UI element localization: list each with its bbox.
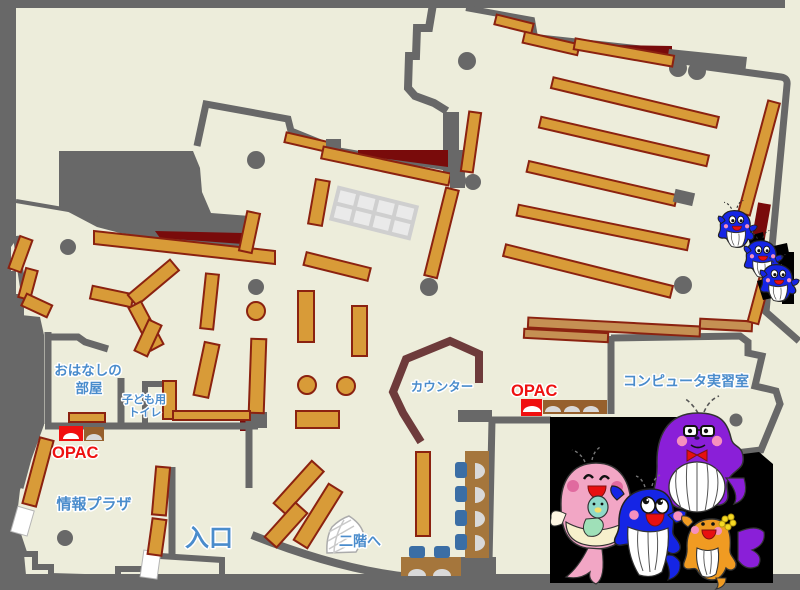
svg-text:子ども用: 子ども用 [122,393,166,406]
svg-text:カウンター: カウンター [411,379,474,394]
svg-text:コンピュータ実習室: コンピュータ実習室 [623,373,749,389]
svg-text:二階へ: 二階へ [339,533,381,549]
svg-text:おはなしの: おはなしの [54,363,122,378]
svg-text:トイレ: トイレ [129,406,162,419]
svg-text:部屋: 部屋 [76,380,103,396]
svg-text:OPAC: OPAC [52,444,99,462]
svg-text:入口: 入口 [185,525,233,552]
svg-text:OPAC: OPAC [511,382,558,400]
svg-text:情報プラザ: 情報プラザ [56,495,131,513]
